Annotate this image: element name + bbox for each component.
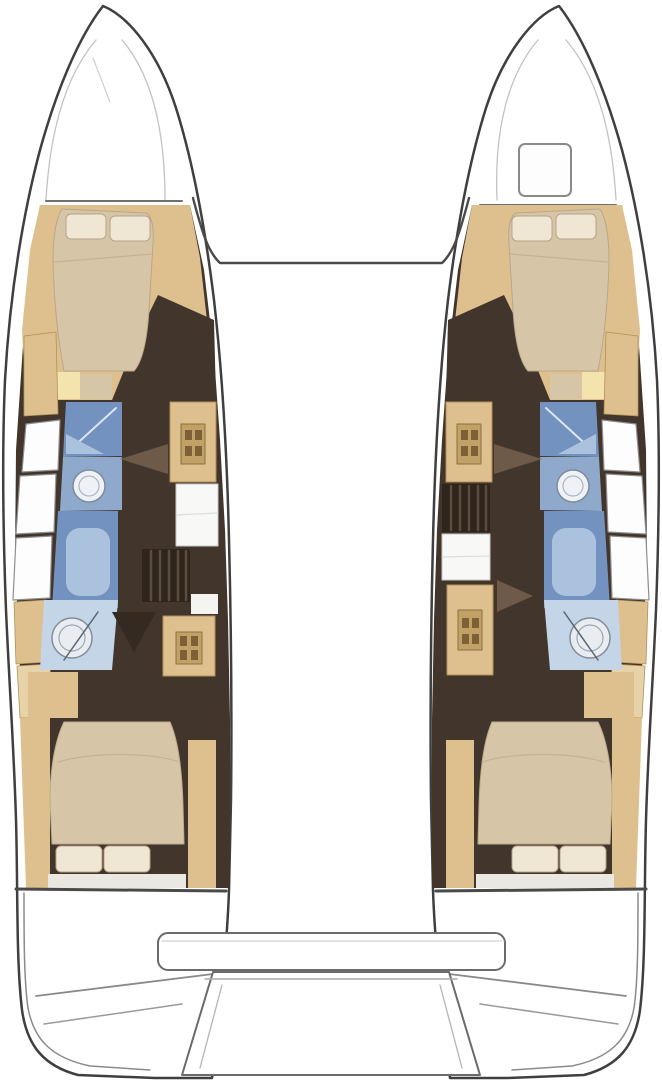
toilet-right	[570, 618, 610, 658]
wardrobe-aft-inset-left	[176, 632, 202, 664]
hull-window-left-3	[13, 536, 52, 600]
fwd-bedfoot-beige-right	[550, 374, 582, 399]
shower-aft-tray-left	[66, 528, 110, 596]
aft-bed-band-left	[48, 874, 186, 888]
shower-aft-tray-right	[552, 528, 596, 596]
hull-window-right-1	[602, 420, 640, 472]
floor-plan-svg	[0, 0, 662, 1080]
fwd-bedfoot-beige-left	[80, 374, 112, 399]
sink-left	[73, 470, 105, 502]
fwd-bed-pillow-right-inboard	[512, 216, 552, 241]
stairs-right	[442, 484, 490, 532]
hull-window-left-1	[22, 420, 60, 472]
bow-right-deck-hatch	[519, 144, 571, 196]
toilet-left	[52, 618, 92, 658]
transom-bulkhead-right	[436, 889, 646, 891]
transom-bulkhead-left	[16, 889, 226, 891]
forward-crossbeam	[193, 198, 469, 263]
catamaran-floor-plan	[0, 0, 662, 1080]
fwd-bed-pillow-right-outboard	[556, 214, 596, 239]
aft-bed-pillow-right-inboard	[512, 846, 558, 872]
aft-bed-mattress-left	[50, 722, 184, 844]
aft-platform	[158, 933, 505, 970]
aft-frame-inboard-left	[188, 740, 216, 888]
hull-window-locker-left-1	[24, 332, 58, 416]
hull-window-locker-right-1	[604, 332, 638, 416]
stairs-left	[142, 549, 190, 602]
fwd-bed-pillow-left-outboard	[66, 214, 106, 239]
aft-frame-corner-left	[28, 672, 78, 718]
stern-steps	[182, 972, 480, 1075]
aft-frame-inboard-right	[446, 740, 474, 888]
aft-bed-pillow-right-outboard	[560, 846, 606, 872]
aft-bed-band-right	[476, 874, 614, 888]
hull-window-right-3	[610, 536, 649, 600]
hull-window-right-2	[606, 474, 646, 534]
aft-bed-pillow-left-outboard	[56, 846, 102, 872]
fwd-bed-pillow-left-inboard	[110, 216, 150, 241]
aft-bed-pillow-left-inboard	[104, 846, 150, 872]
stairs-landing-left	[191, 594, 218, 614]
aft-frame-corner-right	[584, 672, 634, 718]
sink-right	[557, 470, 589, 502]
aft-bed-mattress-right	[478, 722, 612, 844]
hull-window-left-2	[16, 474, 56, 534]
